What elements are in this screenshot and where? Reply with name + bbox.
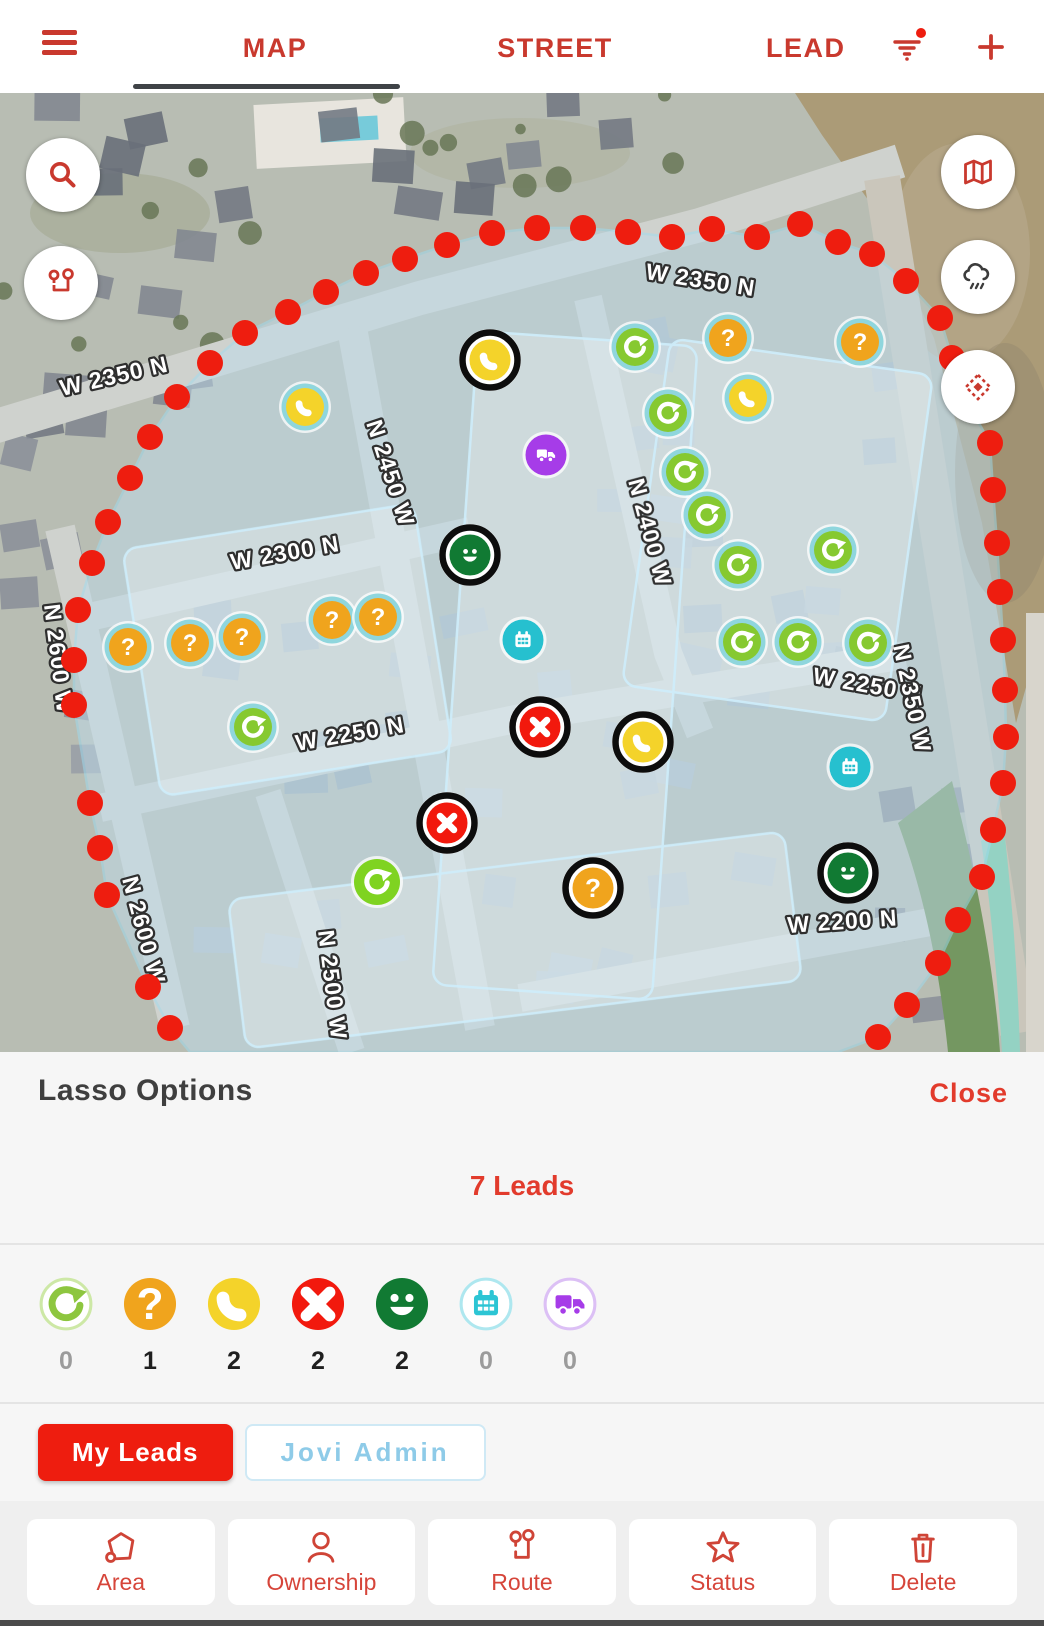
map-marker-question[interactable]: ? xyxy=(702,312,754,364)
system-nav-bar xyxy=(0,1620,1044,1626)
owner-filter-row: My LeadsJovi Admin xyxy=(38,1424,486,1481)
svg-text:?: ? xyxy=(585,873,601,903)
lasso-dot xyxy=(993,724,1019,750)
action-label: Ownership xyxy=(266,1569,376,1596)
owner-filter-jovi-admin[interactable]: Jovi Admin xyxy=(245,1424,486,1481)
route-pins-button[interactable] xyxy=(24,246,98,320)
add-lead-icon[interactable] xyxy=(970,26,1012,68)
lasso-dot xyxy=(927,305,953,331)
action-delete-button[interactable]: Delete xyxy=(829,1519,1017,1605)
tab-leads[interactable]: LEAD xyxy=(766,33,854,64)
status-counts-row: 0? 1 2 2 2 0 0 xyxy=(38,1277,598,1376)
action-route-button[interactable]: Route xyxy=(428,1519,616,1605)
lasso-dot xyxy=(135,974,161,1000)
map-marker-refresh_bright[interactable] xyxy=(351,856,403,908)
lasso-dot xyxy=(353,260,379,286)
map-marker-phone[interactable] xyxy=(612,711,674,773)
lasso-dot xyxy=(570,215,596,241)
ownership-icon xyxy=(302,1528,340,1566)
lasso-dot xyxy=(275,299,301,325)
map-marker-refresh[interactable] xyxy=(609,321,661,373)
truck-status-icon xyxy=(543,1277,597,1331)
svg-text:?: ? xyxy=(121,634,136,661)
map-marker-question[interactable]: ? xyxy=(562,857,624,919)
lasso-dot xyxy=(164,384,190,410)
svg-text:?: ? xyxy=(371,604,386,631)
top-bar: MAP STREET LEAD xyxy=(0,0,1044,93)
lasso-dot xyxy=(615,219,641,245)
route-icon xyxy=(503,1528,541,1566)
action-label: Route xyxy=(491,1569,552,1596)
status-filter-phone[interactable]: 2 xyxy=(206,1277,262,1376)
plus-icon xyxy=(970,26,1012,68)
lasso-dot xyxy=(94,882,120,908)
map-marker-refresh[interactable] xyxy=(807,524,859,576)
delete-icon xyxy=(904,1528,942,1566)
owner-filter-my-leads[interactable]: My Leads xyxy=(38,1424,233,1481)
lasso-target-button[interactable] xyxy=(941,350,1015,424)
action-label: Delete xyxy=(890,1569,956,1596)
map-marker-phone[interactable] xyxy=(279,381,331,433)
lasso-dot xyxy=(232,320,258,346)
active-tab-underline xyxy=(133,84,400,89)
status-count: 0 xyxy=(563,1347,577,1376)
svg-text:?: ? xyxy=(325,607,340,634)
action-ownership-button[interactable]: Ownership xyxy=(228,1519,416,1605)
lasso-dot xyxy=(434,232,460,258)
action-status-button[interactable]: Status xyxy=(629,1519,817,1605)
action-area-button[interactable]: Area xyxy=(27,1519,215,1605)
map-marker-refresh[interactable] xyxy=(842,617,894,669)
lasso-dot xyxy=(87,835,113,861)
map-marker-question[interactable]: ? xyxy=(102,621,154,673)
svg-text:?: ? xyxy=(235,624,250,651)
filter-badge xyxy=(916,28,926,38)
map-layers-button[interactable] xyxy=(941,135,1015,209)
calendar-status-icon xyxy=(459,1277,513,1331)
area-icon xyxy=(102,1528,140,1566)
map-marker-calendar[interactable] xyxy=(500,617,547,664)
status-count: 0 xyxy=(59,1347,73,1376)
filter-icon xyxy=(886,26,928,68)
lasso-dot xyxy=(980,817,1006,843)
map-marker-calendar[interactable] xyxy=(827,744,874,791)
map-marker-truck[interactable] xyxy=(523,432,570,479)
status-filter-smiley[interactable]: 2 xyxy=(374,1277,430,1376)
lasso-dot xyxy=(859,241,885,267)
lasso-dot xyxy=(61,647,87,673)
lasso-dot xyxy=(157,1015,183,1041)
lasso-dot xyxy=(977,430,1003,456)
map-marker-refresh[interactable] xyxy=(716,616,768,668)
lasso-dot xyxy=(984,530,1010,556)
map-marker-question[interactable]: ? xyxy=(352,591,404,643)
map-marker-question[interactable]: ? xyxy=(164,617,216,669)
lasso-dot xyxy=(990,770,1016,796)
menu-icon[interactable] xyxy=(42,30,77,56)
map-marker-phone[interactable] xyxy=(459,329,521,391)
svg-text:?: ? xyxy=(853,329,868,356)
lasso-dot xyxy=(925,950,951,976)
map-marker-refresh[interactable] xyxy=(227,701,279,753)
status-filter-question[interactable]: ? 1 xyxy=(122,1277,178,1376)
lasso-dot xyxy=(787,211,813,237)
status-count: 0 xyxy=(479,1347,493,1376)
question-status-icon: ? xyxy=(123,1277,177,1331)
lasso-dot xyxy=(77,790,103,816)
divider xyxy=(0,1243,1044,1245)
map-marker-phone[interactable] xyxy=(722,372,774,424)
lasso-dot xyxy=(197,350,223,376)
map-marker-refresh[interactable] xyxy=(772,616,824,668)
lasso-dot xyxy=(987,579,1013,605)
lasso-dot xyxy=(894,992,920,1018)
status-icon xyxy=(704,1528,742,1566)
lasso-dot xyxy=(313,279,339,305)
lasso-dot xyxy=(825,229,851,255)
status-count: 2 xyxy=(227,1347,241,1376)
map-marker-x[interactable] xyxy=(416,792,478,854)
map-marker-refresh[interactable] xyxy=(681,489,733,541)
leads-count: 7 Leads xyxy=(0,1170,1044,1202)
status-count: 2 xyxy=(395,1347,409,1376)
svg-text:?: ? xyxy=(136,1280,163,1329)
lasso-dot xyxy=(95,509,121,535)
refresh-status-icon xyxy=(39,1277,93,1331)
lasso-dot xyxy=(980,477,1006,503)
smiley-status-icon xyxy=(375,1277,429,1331)
lasso-dot xyxy=(65,597,91,623)
tab-map[interactable]: MAP xyxy=(175,33,375,64)
lasso-dot xyxy=(969,864,995,890)
map-marker-x[interactable] xyxy=(509,696,571,758)
action-label: Area xyxy=(97,1569,146,1596)
lasso-dot xyxy=(893,268,919,294)
svg-text:?: ? xyxy=(721,325,736,352)
lasso-dot xyxy=(992,677,1018,703)
lasso-options-panel: Lasso Options Close 7 Leads 0? 1 2 2 2 0… xyxy=(0,1052,1044,1626)
search-icon xyxy=(41,153,85,197)
map-marker-refresh[interactable] xyxy=(642,387,694,439)
weather-button[interactable] xyxy=(941,240,1015,314)
lasso-dot xyxy=(137,424,163,450)
satellite-map[interactable]: W 2350 NW 2350 NN 2450 WN 2400 WW 2300 N… xyxy=(0,93,1044,1052)
lasso-dot xyxy=(990,627,1016,653)
map-marker-question[interactable]: ? xyxy=(216,611,268,663)
lasso-dot xyxy=(945,907,971,933)
map-layers-icon xyxy=(956,150,1000,194)
lasso-dot xyxy=(479,220,505,246)
map-view[interactable]: W 2350 NW 2350 NN 2450 WN 2400 WW 2300 N… xyxy=(0,93,1044,1052)
phone-status-icon xyxy=(207,1277,261,1331)
search-button[interactable] xyxy=(26,138,100,212)
x-status-icon xyxy=(291,1277,345,1331)
map-marker-smiley[interactable] xyxy=(817,842,879,904)
lasso-dot xyxy=(699,216,725,242)
route-pins-icon xyxy=(39,261,83,305)
lasso-dot xyxy=(524,215,550,241)
lasso-target-icon xyxy=(956,365,1000,409)
divider xyxy=(0,1402,1044,1404)
lasso-dot xyxy=(392,246,418,272)
map-marker-question[interactable]: ? xyxy=(306,594,358,646)
filter-icon[interactable] xyxy=(886,26,928,68)
svg-text:?: ? xyxy=(183,630,198,657)
panel-title: Lasso Options xyxy=(38,1074,253,1108)
weather-icon xyxy=(956,255,1000,299)
app-screen: MAP STREET LEAD xyxy=(0,0,1044,1626)
lasso-action-bar: Area Ownership Route Status Delete xyxy=(0,1501,1044,1626)
action-label: Status xyxy=(690,1569,755,1596)
map-marker-refresh[interactable] xyxy=(712,539,764,591)
status-filter-calendar[interactable]: 0 xyxy=(458,1277,514,1376)
map-marker-question[interactable]: ? xyxy=(834,316,886,368)
close-button[interactable]: Close xyxy=(929,1078,1008,1109)
lasso-dot xyxy=(61,692,87,718)
tab-street[interactable]: STREET xyxy=(455,33,655,64)
status-filter-x[interactable]: 2 xyxy=(290,1277,346,1376)
lasso-dot xyxy=(117,465,143,491)
lasso-dot xyxy=(659,224,685,250)
status-count: 2 xyxy=(311,1347,325,1376)
status-filter-truck[interactable]: 0 xyxy=(542,1277,598,1376)
lasso-dot xyxy=(865,1024,891,1050)
status-filter-refresh[interactable]: 0 xyxy=(38,1277,94,1376)
lasso-dot xyxy=(79,550,105,576)
status-count: 1 xyxy=(143,1347,157,1376)
lasso-dot xyxy=(744,224,770,250)
map-marker-smiley[interactable] xyxy=(439,524,501,586)
